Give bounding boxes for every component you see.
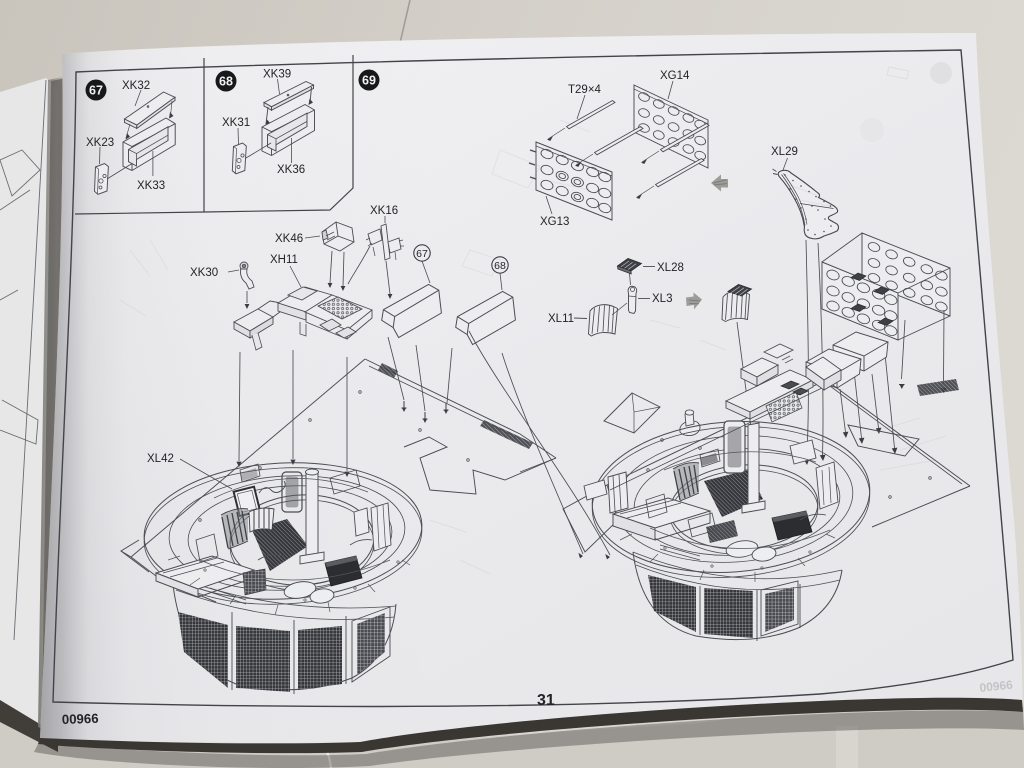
svg-text:XL42: XL42 (147, 453, 174, 465)
svg-text:XK16: XK16 (370, 205, 398, 217)
svg-text:XL28: XL28 (657, 262, 684, 274)
svg-text:XK30: XK30 (190, 267, 218, 279)
svg-text:69: 69 (362, 74, 376, 88)
svg-text:XK39: XK39 (263, 69, 291, 81)
svg-text:XL3: XL3 (652, 293, 672, 305)
svg-text:XK23: XK23 (86, 137, 114, 149)
svg-text:68: 68 (219, 75, 233, 89)
svg-text:67: 67 (89, 84, 103, 98)
svg-text:XK31: XK31 (222, 117, 250, 129)
svg-text:00966: 00966 (62, 711, 99, 727)
svg-text:XK46: XK46 (275, 233, 303, 245)
svg-text:XK32: XK32 (122, 80, 150, 92)
svg-text:31: 31 (537, 692, 555, 709)
svg-text:XK33: XK33 (137, 180, 165, 192)
svg-text:XG13: XG13 (540, 216, 569, 228)
svg-text:67: 67 (416, 248, 428, 260)
svg-text:XG14: XG14 (660, 70, 690, 82)
svg-text:XK36: XK36 (277, 164, 305, 176)
svg-text:XH11: XH11 (270, 254, 298, 266)
svg-text:68: 68 (494, 260, 506, 272)
svg-text:XL29: XL29 (771, 146, 798, 158)
svg-text:T29×4: T29×4 (568, 84, 602, 96)
svg-text:XL11: XL11 (548, 313, 574, 325)
